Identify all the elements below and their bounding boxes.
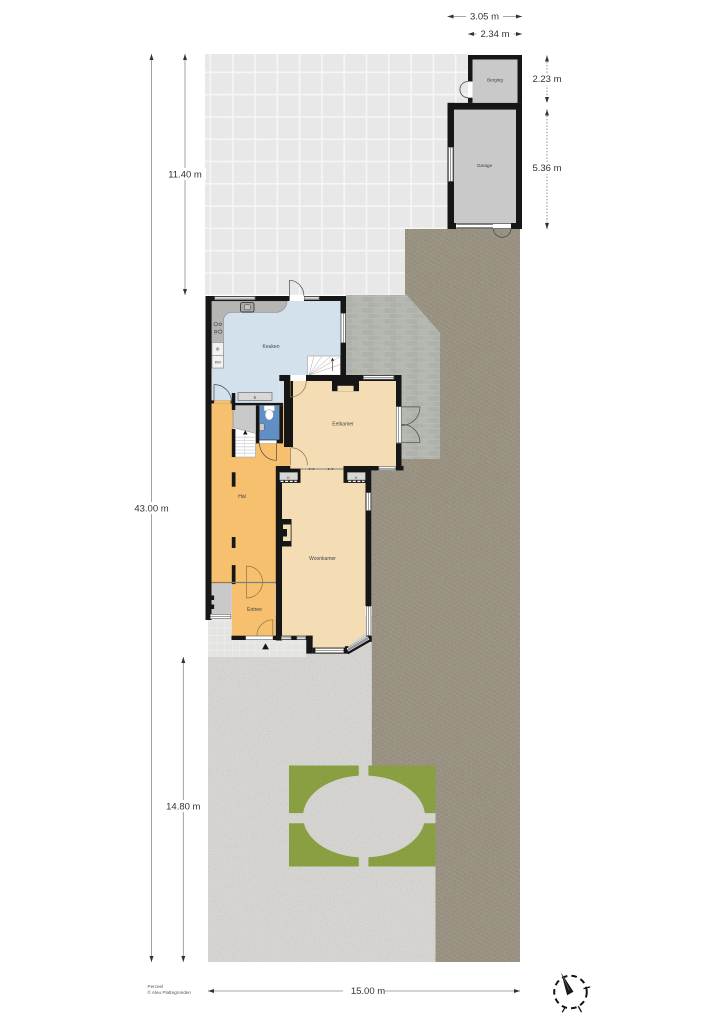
svg-text:K: K bbox=[355, 475, 358, 480]
svg-text:K: K bbox=[287, 475, 290, 480]
svg-text:Entree: Entree bbox=[247, 607, 262, 613]
svg-text:15.00 m: 15.00 m bbox=[351, 986, 385, 997]
svg-text:43.00 m: 43.00 m bbox=[134, 503, 168, 514]
svg-text:Garage: Garage bbox=[477, 163, 493, 168]
svg-text:14.80 m: 14.80 m bbox=[166, 801, 200, 812]
svg-text:3.05 m: 3.05 m bbox=[470, 12, 499, 23]
svg-text:Woonkamer: Woonkamer bbox=[309, 556, 336, 562]
svg-text:K: K bbox=[254, 395, 257, 400]
svg-text:2.23 m: 2.23 m bbox=[532, 74, 561, 85]
svg-text:11.40 m: 11.40 m bbox=[168, 169, 202, 180]
svg-text:Eetkamer: Eetkamer bbox=[332, 422, 354, 428]
svg-text:Keuken: Keuken bbox=[263, 344, 280, 350]
svg-text:KM: KM bbox=[215, 360, 221, 365]
svg-text:© Aleu Plattegronden: © Aleu Plattegronden bbox=[148, 989, 192, 995]
svg-text:❄: ❄ bbox=[215, 346, 220, 353]
svg-text:Berging: Berging bbox=[487, 77, 503, 82]
svg-text:2.34 m: 2.34 m bbox=[480, 29, 509, 40]
svg-text:5.36 m: 5.36 m bbox=[532, 163, 561, 174]
svg-text:Hal: Hal bbox=[238, 494, 246, 500]
svg-text:Perceel: Perceel bbox=[148, 984, 164, 989]
